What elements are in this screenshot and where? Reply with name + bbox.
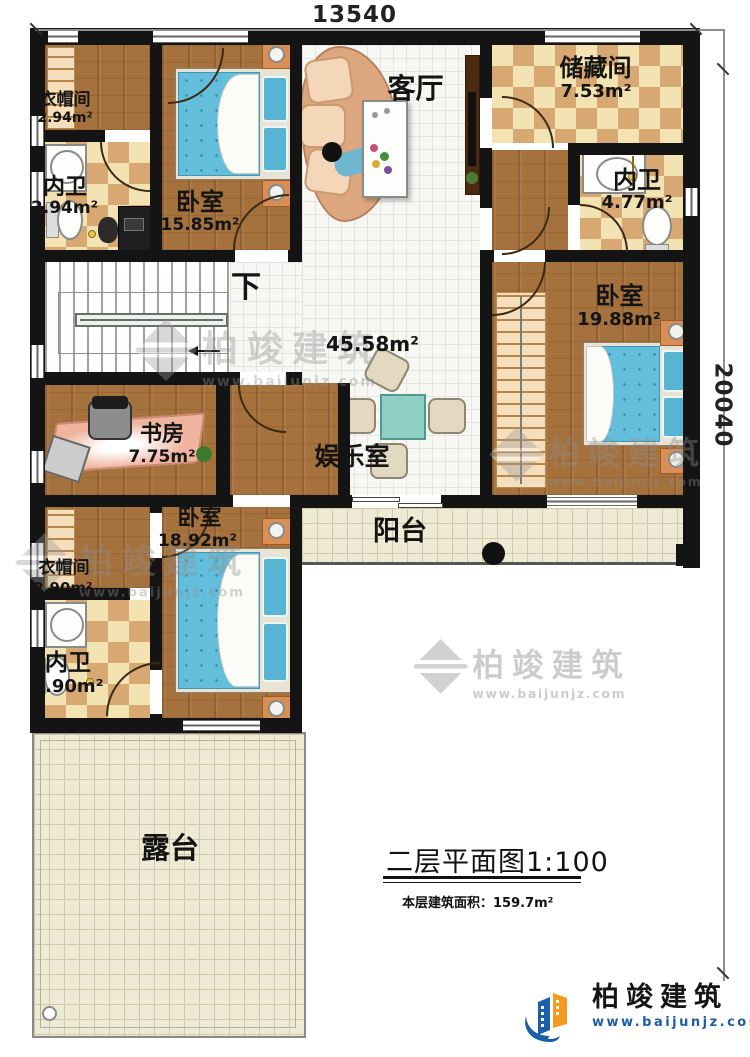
drawing-title: 二层平面图1:100 xyxy=(386,840,609,879)
wall xyxy=(30,372,240,385)
room-label-bedroom-bottom: 卧室 xyxy=(162,507,237,530)
lamp-icon xyxy=(268,522,285,539)
room-area-bedroom-bottom: 18.92m² xyxy=(150,533,245,551)
title-underline-thin xyxy=(383,882,581,883)
room-area-cloakroom-bottom: 2.90m² xyxy=(28,581,98,597)
room-label-terrace: 露台 xyxy=(130,833,210,863)
room-label-cloakroom-bottom: 衣帽间 xyxy=(24,560,104,578)
room-label-bedroom-top: 卧室 xyxy=(155,190,245,215)
dimension-line-top xyxy=(35,29,723,31)
wall xyxy=(290,28,302,250)
wall xyxy=(150,558,162,670)
window xyxy=(153,30,248,43)
wall xyxy=(286,372,302,385)
sofa-cushion xyxy=(303,55,355,105)
wall xyxy=(216,385,230,495)
lamp-icon xyxy=(268,700,285,717)
title-underline xyxy=(383,876,581,879)
room-label-bath-right: 内卫 xyxy=(598,168,676,193)
floor-area-label: 本层建筑面积： xyxy=(402,896,493,911)
lamp-icon xyxy=(268,46,285,63)
wall xyxy=(480,262,492,495)
room-area-bath-top: 2.94m² xyxy=(22,200,107,218)
window xyxy=(31,345,44,378)
terrace-drain xyxy=(42,1006,57,1021)
floor-area-value: 159.7m² xyxy=(493,896,553,911)
person-head xyxy=(322,142,342,162)
terrace-inner-border xyxy=(40,740,296,1028)
window xyxy=(547,497,637,506)
wall xyxy=(338,383,350,495)
room-area-bedroom-right: 19.88m² xyxy=(558,311,680,330)
balcony-column xyxy=(482,542,505,565)
sofa-cushion xyxy=(300,104,346,148)
brand-logo: 柏竣建筑 www.baijunjz.com xyxy=(520,984,750,1044)
cup-icon xyxy=(372,112,378,118)
tv-icon xyxy=(468,92,476,166)
room-label-bath-top: 内卫 xyxy=(30,176,100,199)
room-label-storage: 储藏间 xyxy=(543,56,648,81)
wall xyxy=(480,148,492,208)
bed-top-pillow xyxy=(262,76,288,122)
dimension-right: 20040 xyxy=(710,362,736,447)
sliding-door xyxy=(398,503,443,508)
bed-top-blanket xyxy=(217,74,259,174)
floor-plan: 柏竣建筑 www.baijunjz.com 柏竣建筑 www.baijunjz.… xyxy=(0,0,750,1057)
coffee-table xyxy=(362,100,408,198)
window xyxy=(48,30,78,43)
watermark-company: 柏竣建筑 xyxy=(472,640,630,686)
flower-decor xyxy=(380,152,389,161)
sink-icon xyxy=(50,608,84,642)
sliding-door xyxy=(352,497,400,502)
window xyxy=(183,720,260,731)
wall xyxy=(568,143,697,155)
dining-chair xyxy=(428,398,466,434)
room-label-balcony: 阳台 xyxy=(360,518,440,546)
window xyxy=(545,30,640,43)
wall xyxy=(150,507,162,513)
stairs-arrowhead-icon xyxy=(188,346,198,356)
drain-knob xyxy=(88,230,96,238)
brand-company-name: 柏竣建筑 xyxy=(592,984,750,1011)
room-area-study: 7.75m² xyxy=(122,449,202,467)
room-area-cloakroom-top: 2.94m² xyxy=(25,111,105,126)
dimension-top: 13540 xyxy=(312,2,397,28)
bed-bottom-blanket xyxy=(217,554,259,687)
bed-bottom-pillow xyxy=(262,557,288,617)
floor-corridor-south xyxy=(302,383,338,495)
monitor-icon xyxy=(124,218,144,231)
dimension-line-right xyxy=(723,29,725,981)
watermark-site: www.baijunjz.com xyxy=(472,688,630,702)
wall xyxy=(30,718,302,733)
window xyxy=(31,451,44,483)
room-label-living: 客厅 xyxy=(368,74,463,103)
room-label-bath-bottom: 内卫 xyxy=(32,651,104,675)
desk-chair xyxy=(98,217,118,243)
cup-icon xyxy=(384,108,390,114)
flower-decor xyxy=(372,160,380,168)
office-chair-back xyxy=(92,396,128,409)
brand-logo-icon xyxy=(520,984,584,1044)
plant-icon xyxy=(466,172,478,184)
flower-decor xyxy=(384,166,392,174)
room-area-bedroom-top: 15.85m² xyxy=(150,217,250,235)
dining-table xyxy=(380,394,426,440)
brand-website: www.baijunjz.com xyxy=(592,1016,750,1029)
wall xyxy=(568,143,580,205)
wall xyxy=(480,28,492,98)
wardrobe-rail-right xyxy=(520,296,522,484)
wall xyxy=(290,495,302,732)
hall-area: 45.58m² xyxy=(326,334,411,355)
flower-decor xyxy=(370,144,378,152)
wall xyxy=(288,250,302,262)
watermark: 柏竣建筑 www.baijunjz.com xyxy=(416,640,631,702)
bed-right-blanket xyxy=(586,346,614,442)
room-area-storage: 7.53m² xyxy=(552,83,640,102)
window xyxy=(31,610,44,647)
wall xyxy=(637,495,697,508)
room-label-entertainment: 娱乐室 xyxy=(302,444,402,470)
wall xyxy=(30,250,235,262)
bed-bottom-pillow xyxy=(262,622,288,682)
stairs-down-label: 下 xyxy=(226,272,266,304)
room-area-bath-bottom: 2.90m² xyxy=(22,678,114,697)
room-area-bath-right: 4.77m² xyxy=(596,194,678,213)
wall xyxy=(441,495,547,508)
watermark-logo-icon xyxy=(413,639,468,694)
wall xyxy=(683,28,700,568)
wall xyxy=(480,250,494,262)
stairs-direction-arrow xyxy=(196,350,220,352)
bed-top-pillow xyxy=(262,126,288,172)
wall xyxy=(302,495,352,508)
window xyxy=(685,188,698,216)
room-label-cloakroom-top: 衣帽间 xyxy=(25,92,105,110)
floor-area-note: 本层建筑面积：159.7m² xyxy=(402,892,553,911)
room-label-study: 书房 xyxy=(126,423,198,446)
stairs-rail-line xyxy=(80,319,223,321)
room-label-bedroom-right: 卧室 xyxy=(572,284,667,309)
